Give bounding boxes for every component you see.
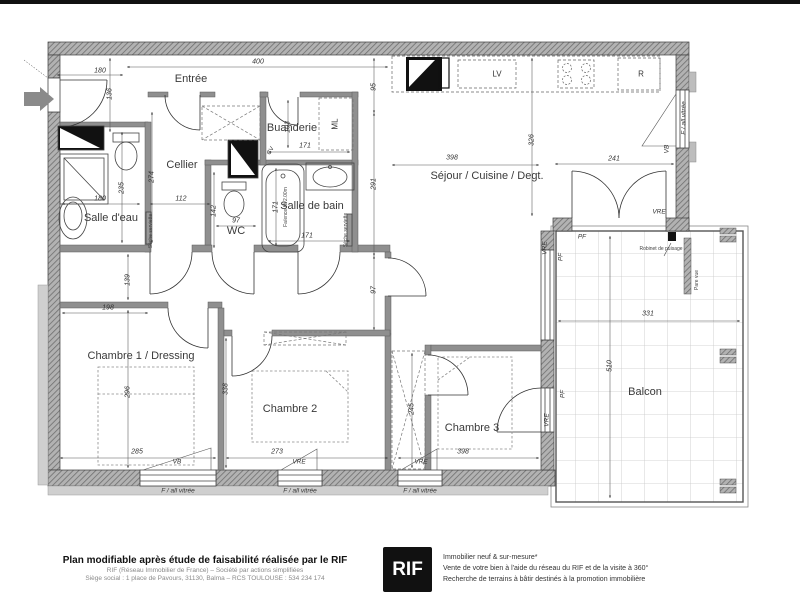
- footer-company-line: RIF (Réseau Immobilier de France) – Soci…: [40, 567, 370, 574]
- footer-services-block: Immobilier neuf & sur-mesure* Vente de v…: [443, 553, 648, 586]
- footer-service-1: Immobilier neuf & sur-mesure*: [443, 553, 648, 564]
- footer-headline: Plan modifiable après étude de faisabili…: [40, 555, 370, 566]
- robinet-symbol: [668, 232, 676, 241]
- floor-plan: EntréeCellierSalle d'eauWCSalle de bainB…: [0, 0, 800, 545]
- beds: [98, 357, 512, 465]
- footer-left-block: Plan modifiable après étude de faisabili…: [40, 555, 370, 582]
- footer-service-2: Vente de votre bien à l'aide du réseau d…: [443, 564, 648, 575]
- interior-walls: [60, 92, 541, 470]
- balcony: [551, 226, 748, 507]
- oven-sink: [406, 57, 591, 91]
- footer: Plan modifiable après étude de faisabili…: [0, 545, 800, 600]
- pare-vue-screen: [684, 238, 691, 294]
- rif-logo: RIF: [383, 547, 432, 592]
- floor-plan-drawing: [0, 0, 800, 545]
- footer-service-3: Recherche de terrains à bâtir destinés à…: [443, 575, 648, 586]
- footer-address-line: Siège social : 1 place de Pavours, 31130…: [40, 575, 370, 582]
